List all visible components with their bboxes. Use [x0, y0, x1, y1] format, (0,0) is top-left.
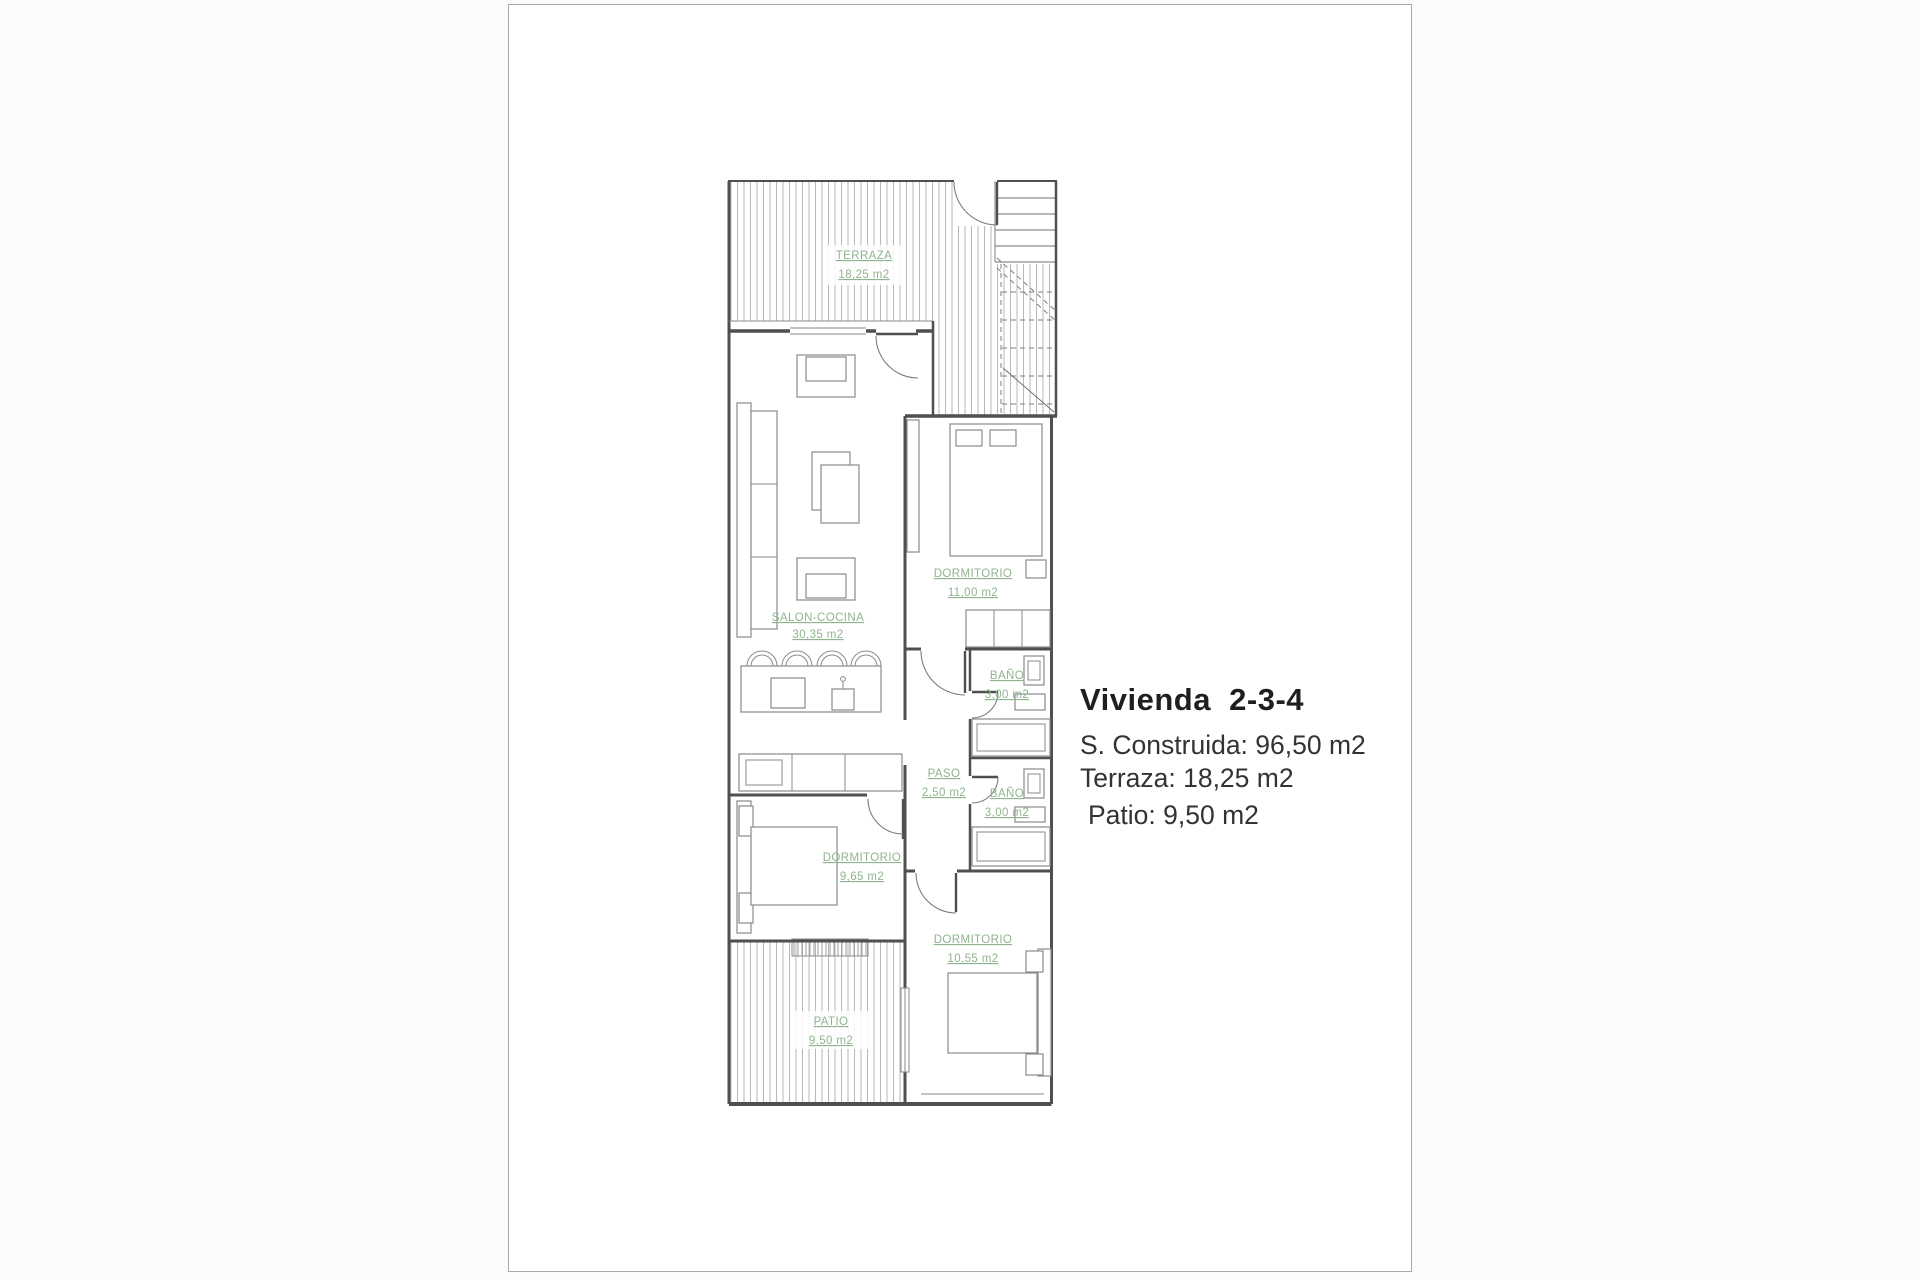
room-area-terraza: 18,25 m2 [838, 269, 889, 281]
patio-area-text: Patio: 9,50 m2 [1080, 799, 1366, 832]
bathroom-fixtures [972, 656, 1050, 866]
staircase [995, 198, 1057, 414]
room-label-dorm1: DORMITORIO [934, 568, 1013, 580]
terraza-deck [730, 181, 997, 416]
kitchen-furniture [739, 651, 902, 791]
bedroom3-furniture [948, 949, 1051, 1076]
bedroom2-furniture [737, 801, 837, 933]
room-area-paso: 2,50 m2 [922, 787, 966, 799]
room-label-patio: PATIO [814, 1016, 849, 1028]
terrace-area-text: Terraza: 18,25 m2 [1080, 762, 1366, 795]
dwelling-title: Vivienda 2-3-4 [1080, 682, 1366, 718]
room-area-dorm2: 9,65 m2 [840, 871, 884, 883]
room-area-dorm3: 10,55 m2 [947, 953, 998, 965]
built-area-text: S. Construida: 96,50 m2 [1080, 729, 1366, 762]
info-panel: Vivienda 2-3-4 S. Construida: 96,50 m2 T… [1080, 682, 1366, 832]
room-label-terraza: TERRAZA [836, 250, 892, 262]
room-label-bano2: BAÑO [990, 787, 1024, 800]
room-area-patio: 9,50 m2 [809, 1035, 853, 1047]
room-area-bano2: 3,00 m2 [985, 807, 1029, 819]
room-area-dorm1: 11,00 m2 [948, 587, 998, 599]
bedroom1-furniture [907, 420, 1050, 647]
floor-plan-drawing: TERRAZA 18,25 m2 SALON-COCINA 30,35 m2 D… [0, 0, 1920, 1280]
salon-furniture [737, 355, 859, 637]
room-label-dorm3: DORMITORIO [934, 934, 1013, 946]
room-label-bano1: BAÑO [990, 669, 1024, 682]
room-label-paso: PASO [928, 768, 961, 780]
room-label-dorm2: DORMITORIO [823, 852, 902, 864]
screenshot-stage: TERRAZA 18,25 m2 SALON-COCINA 30,35 m2 D… [0, 0, 1920, 1280]
room-area-salon: 30,35 m2 [792, 629, 843, 641]
room-area-bano1: 3,00 m2 [985, 689, 1029, 701]
room-label-salon: SALON-COCINA [772, 612, 864, 624]
